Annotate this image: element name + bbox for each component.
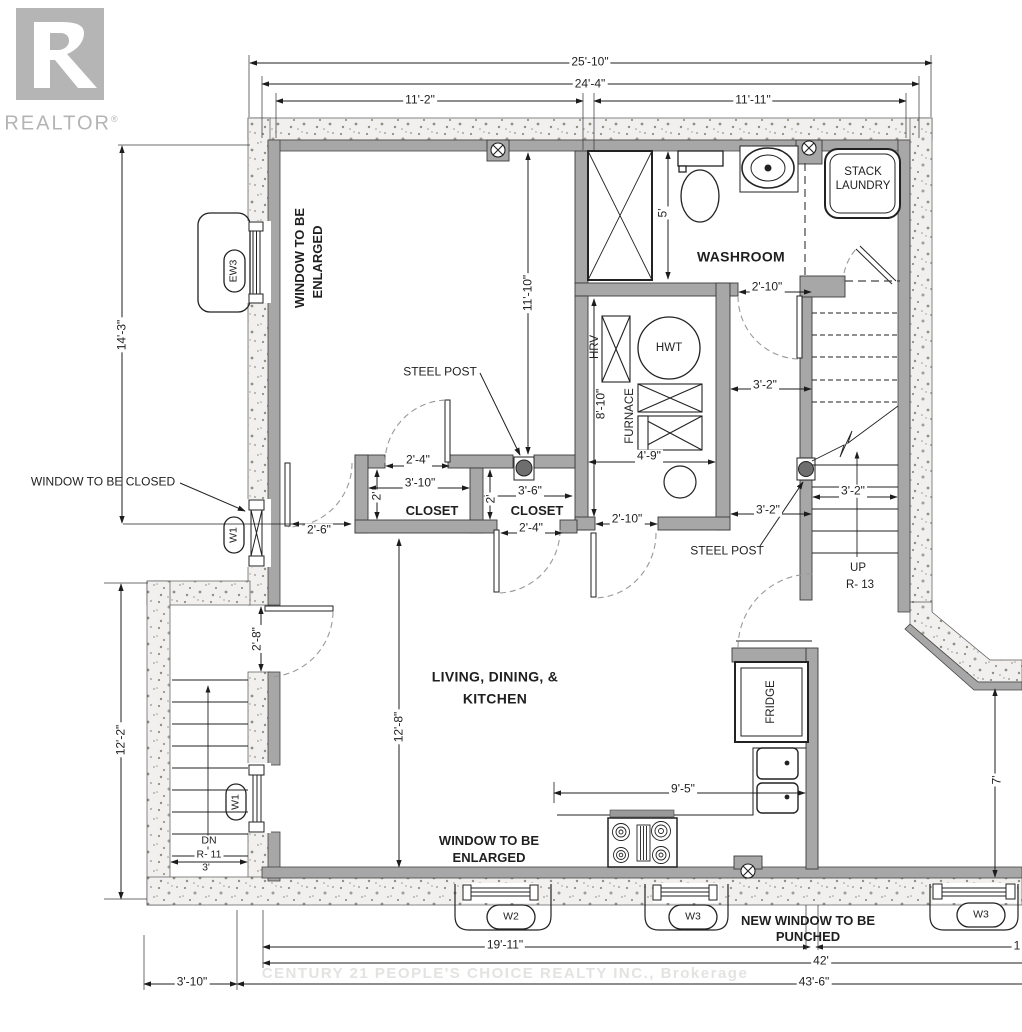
hrv-label: HRV	[589, 335, 601, 359]
stove-icon	[608, 810, 677, 867]
window-enlarged-left-2: ENLARGED	[311, 226, 325, 299]
dim-left-span: 11'-2"	[403, 94, 437, 107]
dim-mech-door: 2'-10"	[610, 513, 645, 526]
furnace-icon	[638, 384, 702, 450]
dim-left-height-lower: 12'-2"	[115, 723, 128, 758]
dim-living-height: 12'-8"	[393, 710, 406, 745]
dim-hall-upper: 3'-2"	[751, 379, 779, 392]
stack-laundry-label-1: STACK	[844, 166, 882, 178]
stack-laundry-label-2: LAUNDRY	[836, 180, 891, 192]
window-tag-w1-closed: W1	[228, 527, 239, 543]
stairs-up-risers: R- 13	[844, 579, 876, 591]
dim-total-42: 42'	[811, 955, 831, 968]
dim-entry-door: 2'-8"	[251, 625, 264, 653]
dim-stair-width: 3'-2"	[839, 485, 867, 498]
registered-mark: ®	[111, 114, 120, 124]
room-label-living-1: LIVING, DINING, &	[432, 670, 558, 685]
dim-mech-height: 8'-10"	[595, 387, 608, 422]
hrv-icon	[602, 316, 630, 382]
dim-bumpout-depth: 3'-10"	[175, 976, 210, 989]
window-tag-w3-left: W3	[685, 911, 701, 922]
dim-closet-left-door: 2'-4"	[404, 454, 432, 467]
sump-icon	[664, 466, 696, 498]
dim-closet-right-width: 3'-6"	[516, 485, 544, 498]
window-tag-w3-right: W3	[973, 909, 989, 920]
dim-overall-width: 25'-10"	[569, 56, 610, 69]
stairs-left	[172, 680, 248, 856]
dim-partial-right: 1	[1012, 940, 1022, 953]
window-tag-ew3: EW3	[228, 260, 239, 283]
dim-mech-width: 4'-9"	[635, 450, 663, 463]
dim-closet-depth-left: 2'	[371, 490, 384, 503]
dim-washroom-door: 2'-10"	[750, 281, 785, 294]
kitchen-sink-icon	[757, 748, 798, 813]
room-label-closet-left: CLOSET	[404, 504, 461, 518]
fridge-label: FRIDGE	[765, 680, 777, 723]
new-window-label-2: PUNCHED	[776, 930, 840, 944]
hwt-label: HWT	[656, 342, 682, 354]
furnace-label: FURNACE	[624, 388, 636, 444]
window-enlarged-bottom-1: WINDOW TO BE	[437, 834, 541, 848]
dim-closet-left-width: 3'-10"	[403, 477, 438, 490]
steel-post-label-1: STEEL POST	[403, 366, 477, 379]
window-tag-w2: W2	[503, 911, 519, 922]
window-enlarged-bottom-2: ENLARGED	[451, 851, 528, 865]
brokerage-watermark: CENTURY 21 PEOPLE'S CHOICE REALTY INC., …	[262, 966, 749, 982]
dim-passage: 2'-6"	[305, 524, 333, 537]
dim-hall-lower: 3'-2"	[754, 504, 782, 517]
dim-stair-left-width: 3'	[200, 862, 212, 873]
window-tag-w1-stairwell: W1	[230, 794, 241, 810]
window-closed-label: WINDOW TO BE CLOSED	[31, 476, 175, 489]
room-label-living-2: KITCHEN	[463, 692, 527, 707]
window-enlarged-left-1: WINDOW TO BE	[293, 208, 307, 308]
dim-shower: 5'	[657, 207, 670, 220]
dim-right-setback: 7'	[991, 774, 1004, 787]
stairs-up-label: UP	[848, 562, 868, 574]
dim-counter-run: 9'-5"	[669, 783, 697, 796]
dim-open-area-height: 11'-10"	[522, 273, 535, 313]
dim-left-height-upper: 14'-3"	[116, 318, 129, 353]
dim-total-43: 43'-6"	[797, 976, 832, 989]
realtor-logo-text: REALTOR®	[4, 114, 119, 135]
stairs-down-risers: R- 11	[195, 849, 224, 860]
dim-right-span: 11'-11"	[733, 94, 772, 107]
toilet-icon	[678, 151, 723, 222]
bathroom-sink-icon	[740, 146, 798, 192]
realtor-logo-icon	[16, 8, 104, 100]
room-label-washroom: WASHROOM	[697, 250, 785, 265]
dim-inner-width: 24'-4"	[573, 78, 608, 91]
floorplan-page: REALTOR® CENTURY 21 PEOPLE'S CHOICE REAL…	[0, 0, 1022, 1032]
stairs-down-label: DN	[199, 835, 218, 846]
dim-closet-right-door: 2'-4"	[517, 522, 545, 535]
room-label-closet-right: CLOSET	[509, 504, 566, 518]
new-window-label-1: NEW WINDOW TO BE	[741, 914, 875, 928]
dim-window-run: 19'-11"	[485, 939, 525, 952]
steel-post-label-2: STEEL POST	[690, 545, 764, 558]
dim-closet-depth-right: 2'	[485, 493, 498, 506]
shower-icon	[588, 151, 652, 280]
stairs-right	[812, 313, 898, 557]
